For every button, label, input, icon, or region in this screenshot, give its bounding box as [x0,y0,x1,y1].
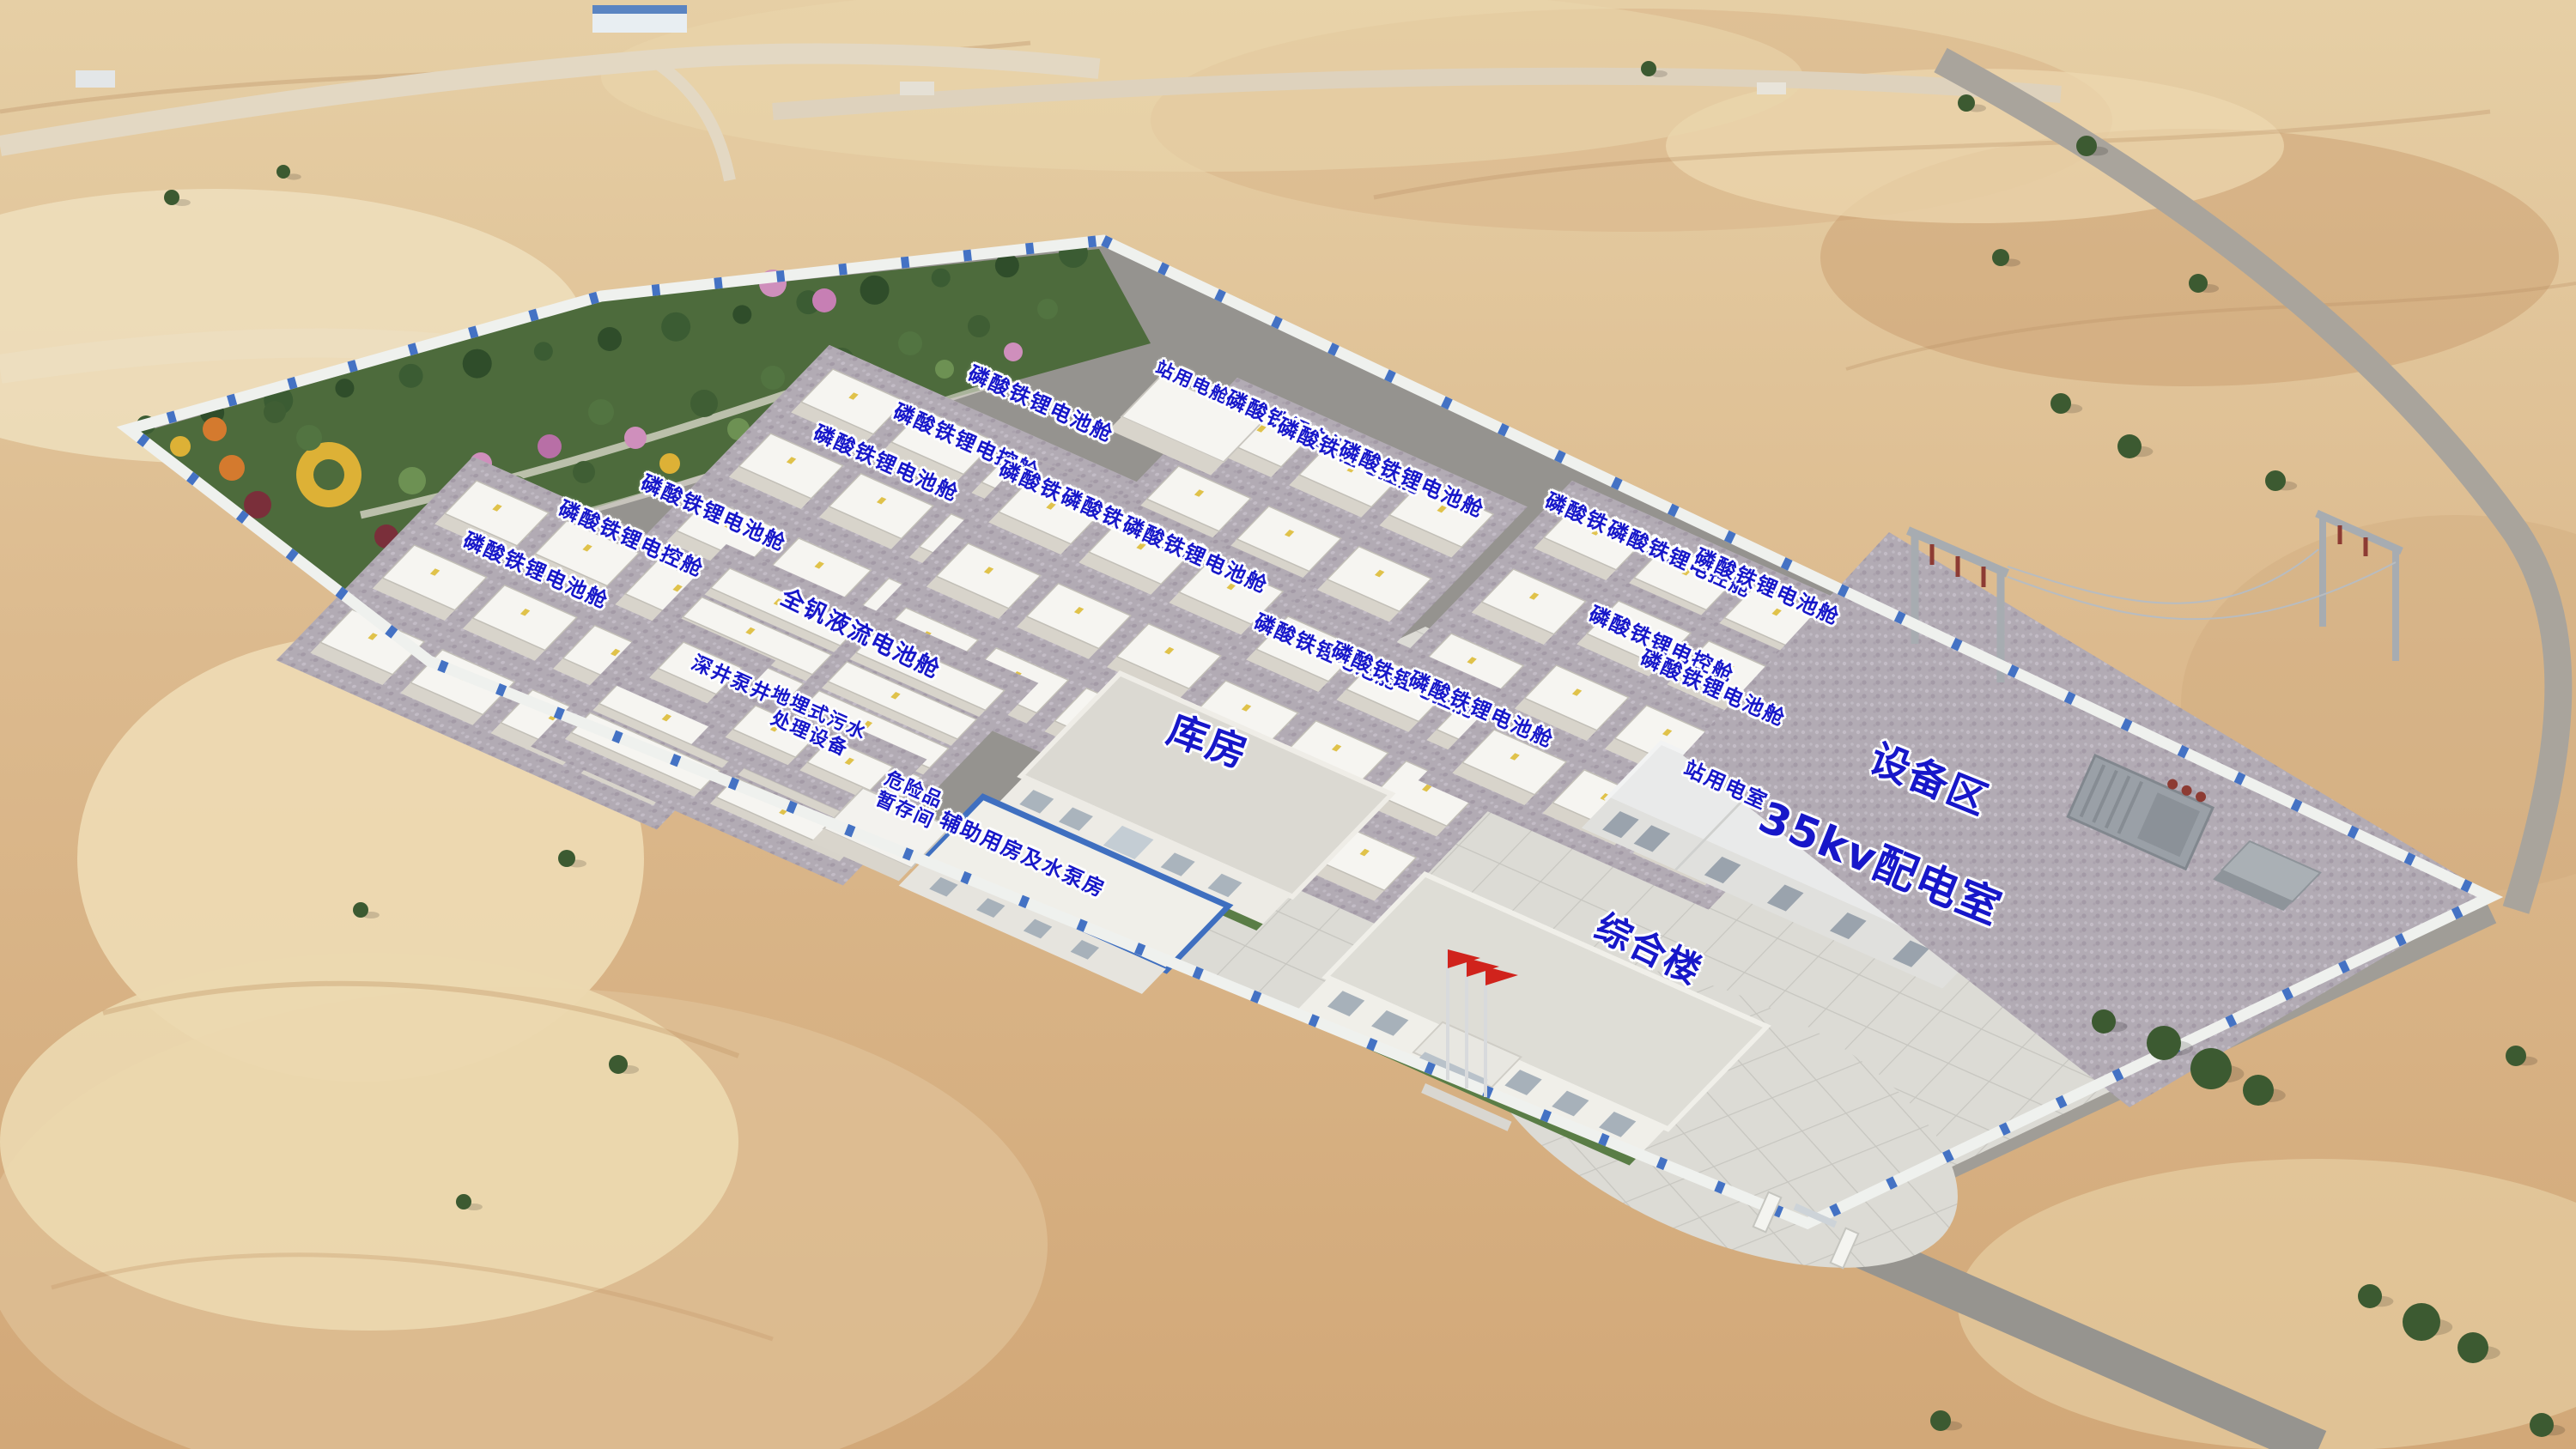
scene-svg [0,0,2576,1449]
site-aerial-rendering: 站用电舱磷酸铁锂电池舱磷酸铁锂电控舱磷酸铁锂电池舱磷酸铁锂电池舱磷酸铁锂电控舱磷… [0,0,2576,1449]
